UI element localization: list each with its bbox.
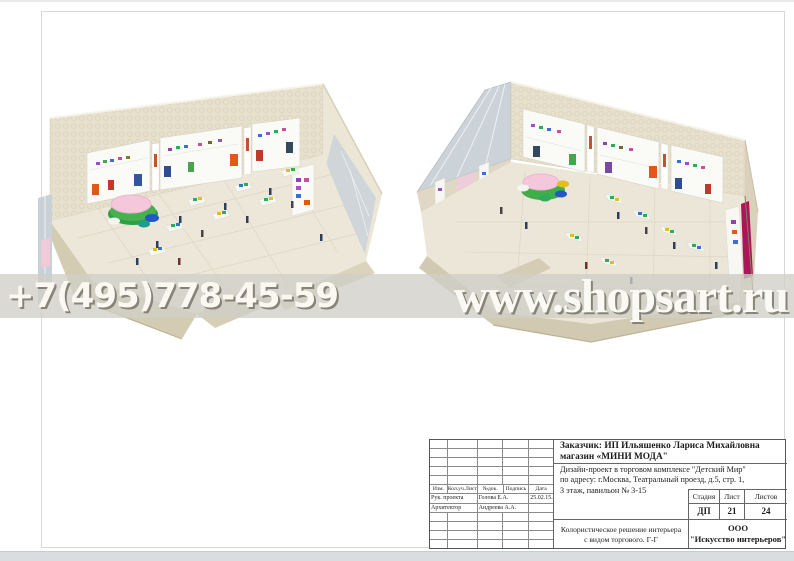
client-info: Заказчик: ИП Ильяшенко Лариса Михайловна…	[554, 440, 787, 464]
revision-row: Рук. проекта Голова Е.А. 25.02.15.	[430, 494, 553, 503]
company-line1: ООО	[689, 523, 787, 534]
display-bay	[252, 118, 300, 172]
client-line2: магазин «МИНИ МОДА"	[560, 452, 787, 463]
title-block: Изм. Кол.уч.Лист №док. Подпись Дата Рук.…	[429, 439, 786, 549]
watermark-website: www.shopsart.ru	[454, 269, 788, 324]
mannequin-poster	[152, 143, 159, 191]
revision-header-cell: Изм.	[430, 485, 448, 493]
drawing-sheet: +7(495)778-45-59 www.shopsart.ru Изм. Ко…	[0, 0, 794, 561]
stage-table: Стадия Лист Листов ДП 21 24 ООО "Искусст…	[688, 489, 787, 548]
sheet-title-line1: Колористическое решение интерьера	[554, 525, 688, 535]
revision-table: Изм. Кол.уч.Лист №док. Подпись Дата Рук.…	[430, 440, 554, 548]
scan-edge-bottom	[0, 551, 794, 561]
stage-value-cell: ДП	[689, 504, 720, 519]
client-line1: Заказчик: ИП Ильяшенко Лариса Михайловна	[560, 441, 787, 452]
project-line1: Дизайн-проект в торговом комплексе "Детс…	[560, 465, 787, 475]
revision-header-cell: Подпись	[504, 485, 530, 493]
role-cell: Архитектор	[430, 504, 478, 512]
stage-value-row: ДП 21 24	[689, 504, 787, 520]
mannequin-poster	[661, 143, 668, 190]
watermark-phone: +7(495)778-45-59	[6, 276, 338, 316]
role-cell: Рук. проекта	[430, 494, 478, 502]
date-cell	[529, 504, 553, 512]
name-cell: Голова Е.А.	[478, 494, 530, 502]
stage-header-row: Стадия Лист Листов	[689, 490, 787, 504]
project-line2: по адресу: г.Москва, Театральный проезд,…	[560, 475, 787, 485]
name-cell: Андреева А.А.	[478, 504, 530, 512]
company-line2: "Искусство интерьеров"	[689, 534, 787, 545]
sheet-number-cell: 21	[720, 504, 745, 519]
stage-header-cell: Лист	[720, 490, 745, 503]
revision-header-cell: Кол.уч.Лист	[448, 485, 478, 493]
revision-row: Архитектор Андреева А.А.	[430, 504, 553, 513]
mannequin-poster	[244, 127, 251, 175]
sheet-title: Колористическое решение интерьера с видо…	[554, 519, 688, 548]
scan-edge-top	[0, 0, 794, 2]
revision-header-row: Изм. Кол.уч.Лист №док. Подпись Дата	[430, 485, 553, 494]
sheet-total-cell: 24	[745, 504, 787, 519]
mannequin-poster	[587, 125, 594, 173]
revision-header-cell: Дата	[529, 485, 553, 493]
revision-header-cell: №док.	[478, 485, 504, 493]
date-cell: 25.02.15.	[529, 494, 553, 502]
company-name: ООО "Искусство интерьеров"	[689, 520, 787, 548]
sheet-title-line2: с видом торгового. Г-Г	[554, 535, 688, 545]
stage-header-cell: Стадия	[689, 490, 720, 503]
stage-header-cell: Листов	[745, 490, 787, 503]
watermark-band: +7(495)778-45-59 www.shopsart.ru	[0, 274, 794, 318]
